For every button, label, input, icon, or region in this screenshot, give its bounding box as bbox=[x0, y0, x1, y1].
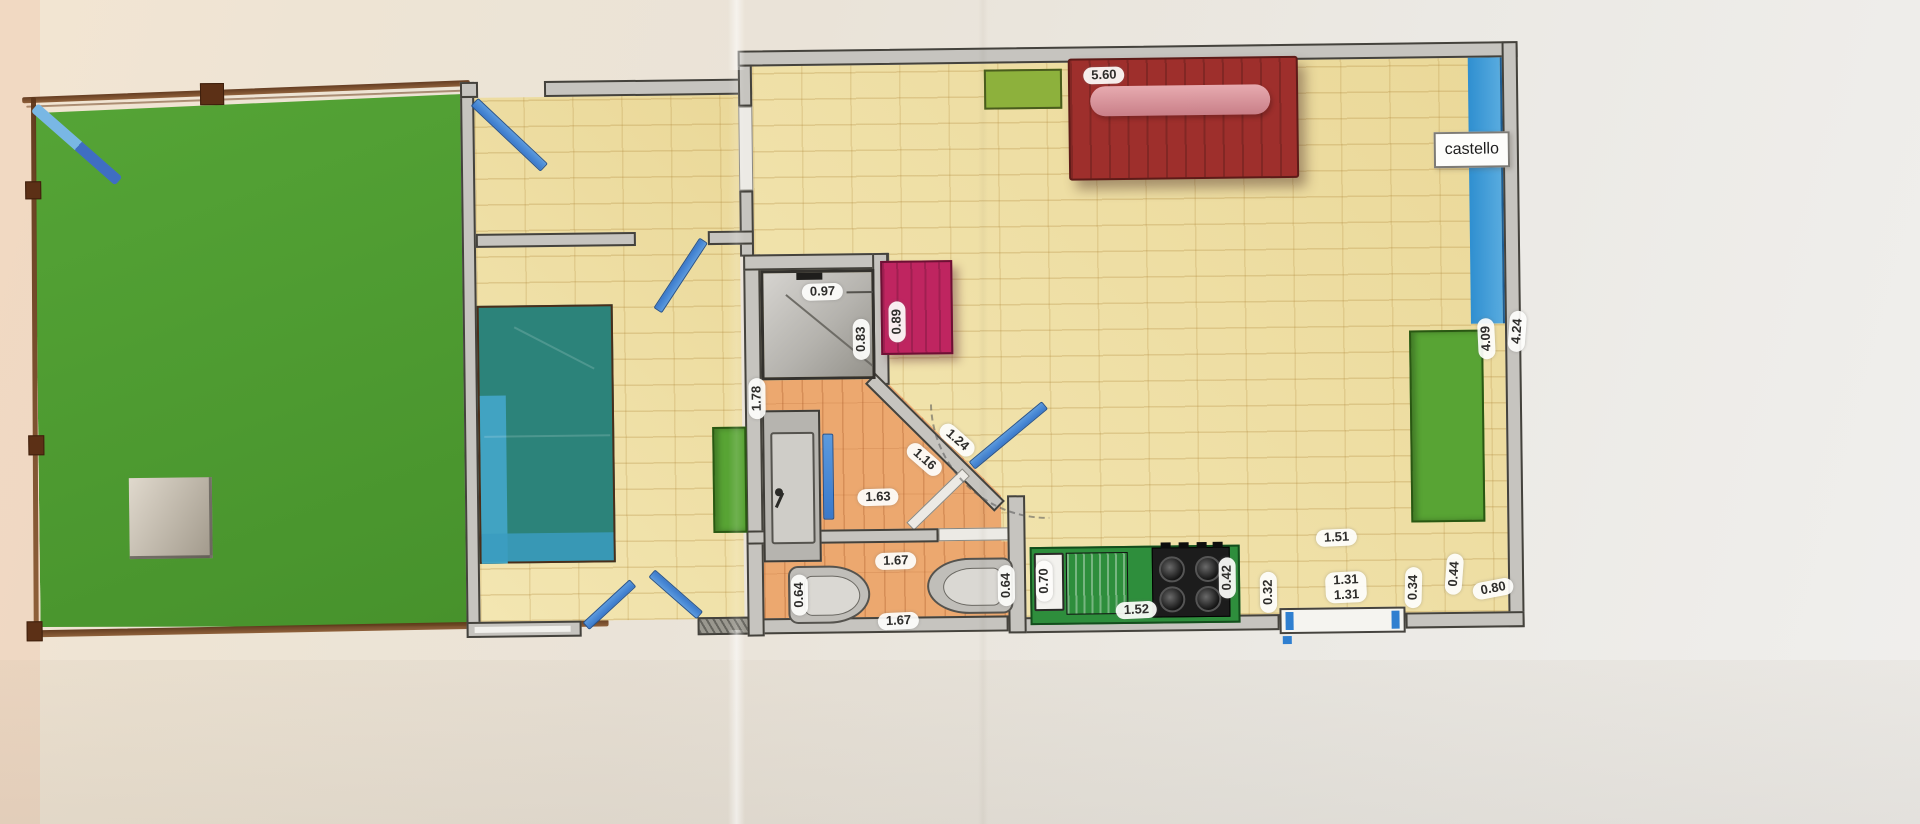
dim-label-stove: 0.42 bbox=[1219, 557, 1236, 599]
bed-sheet-bottom bbox=[481, 532, 613, 562]
stove-knob-icon bbox=[1197, 542, 1207, 548]
dim-label-window-panes: 1.31 1.31 bbox=[1325, 571, 1368, 604]
dim-label-sink-unit: 1.52 bbox=[1115, 601, 1157, 619]
wall-bedroom-top-a bbox=[460, 82, 478, 98]
window-bar-icon bbox=[1285, 612, 1293, 630]
dim-label-wall-height: 4.24 bbox=[1507, 310, 1527, 352]
dimension-line bbox=[847, 291, 873, 293]
dim-label-armchair: 0.89 bbox=[888, 301, 905, 343]
toilet-seat bbox=[804, 575, 860, 616]
bed-fold-line-2 bbox=[514, 326, 595, 369]
dim-label-bidet: 0.64 bbox=[998, 565, 1015, 607]
window-tick-icon bbox=[1283, 636, 1292, 644]
window-bar-icon bbox=[1391, 611, 1399, 629]
floorplan-photo: 5.60 0.97 0.83 0.89 1.78 1.16 1.24 1.63 … bbox=[0, 0, 1920, 824]
burner-icon bbox=[1159, 556, 1185, 582]
sofa-cushion bbox=[1090, 84, 1270, 116]
bidet-seat bbox=[943, 568, 1001, 607]
garden-area bbox=[34, 94, 468, 631]
dim-label-toilet: 0.64 bbox=[791, 574, 808, 616]
dim-label-corner: 0.44 bbox=[1444, 553, 1464, 595]
wall-shower-top bbox=[743, 253, 889, 271]
shower-head-icon bbox=[796, 273, 822, 280]
dim-label-counter-depth: 0.70 bbox=[1036, 560, 1053, 602]
paper-seam bbox=[728, 0, 745, 70]
dim-label-shower-width: 0.97 bbox=[802, 283, 844, 301]
fence-post-bottom bbox=[26, 621, 42, 641]
wall-bottom-right bbox=[1405, 611, 1524, 628]
garden-table bbox=[129, 477, 213, 559]
window-bedroom-bottom bbox=[475, 626, 571, 633]
paper-seam bbox=[728, 70, 745, 630]
wall-hall-bedroom bbox=[476, 232, 636, 248]
stove-knob-icon bbox=[1213, 542, 1223, 548]
fence-post-left-lower bbox=[28, 435, 44, 455]
stove-knob-icon bbox=[1179, 542, 1189, 548]
bed-fold-line bbox=[484, 434, 610, 438]
doorway-wc bbox=[938, 527, 1008, 541]
dim-label-shower-depth: 0.83 bbox=[853, 318, 870, 360]
wall-bedroom-top-b bbox=[544, 79, 752, 98]
dim-label-wc-top: 1.67 bbox=[875, 552, 917, 570]
dim-label-sofa-wall: 5.60 bbox=[1083, 66, 1125, 84]
window-french-door bbox=[1468, 57, 1505, 323]
stove-knob-icon bbox=[1161, 542, 1171, 548]
table-green bbox=[984, 69, 1062, 110]
dim-label-pier-left: 0.32 bbox=[1260, 571, 1277, 613]
dim-label-bath-width: 1.63 bbox=[857, 488, 899, 506]
dim-label-sink-wall: 1.78 bbox=[748, 378, 765, 420]
burner-icon bbox=[1159, 586, 1185, 612]
paper-crease bbox=[978, 0, 988, 824]
wardrobe-living-room bbox=[1409, 330, 1485, 523]
dim-label-window-height: 4.09 bbox=[1477, 318, 1495, 360]
dim-label-window-span: 1.51 bbox=[1316, 528, 1358, 546]
fence-post-left-upper bbox=[25, 181, 41, 199]
burner-icon bbox=[1195, 556, 1221, 582]
bed-double bbox=[477, 304, 616, 564]
door-leaf-bathroom bbox=[822, 434, 834, 520]
floorplan-scene: 5.60 0.97 0.83 0.89 1.78 1.16 1.24 1.63 … bbox=[0, 0, 1920, 824]
fence-post-top bbox=[200, 83, 224, 105]
paper-seam bbox=[728, 630, 745, 824]
window-bottom bbox=[1279, 607, 1405, 635]
castello-label: castello bbox=[1434, 131, 1510, 168]
dim-label-pier-right: 0.34 bbox=[1404, 567, 1421, 609]
burner-icon bbox=[1195, 586, 1221, 612]
dim-label-wc-bottom: 1.67 bbox=[878, 612, 920, 630]
